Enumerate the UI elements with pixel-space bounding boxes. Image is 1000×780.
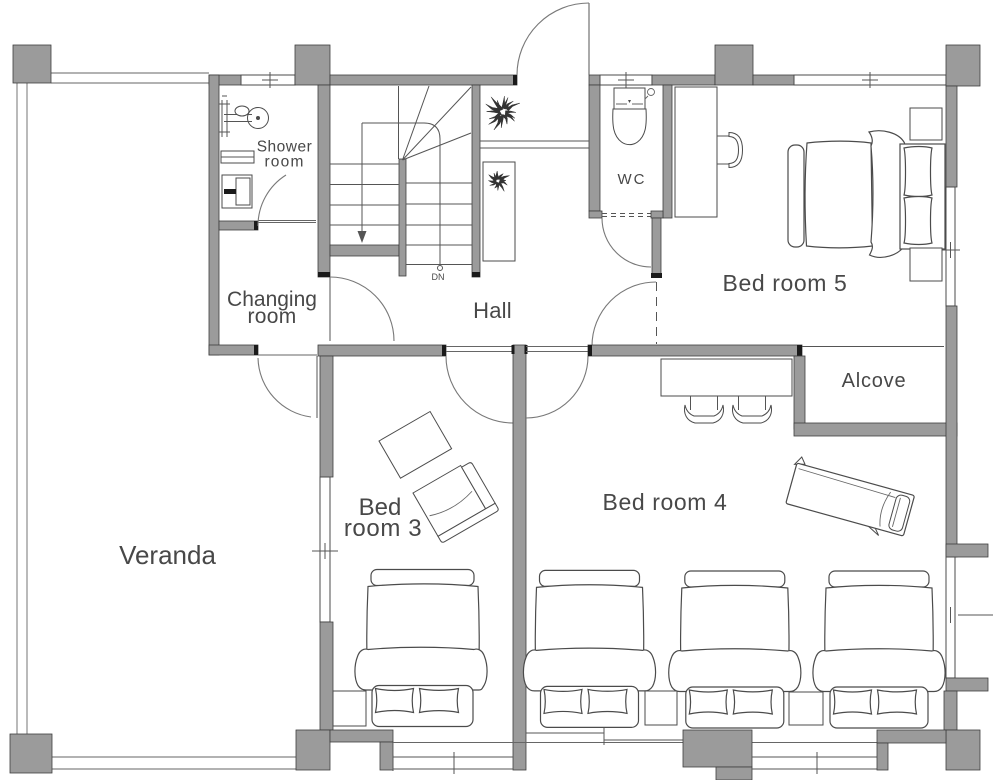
svg-text:Alcove: Alcove <box>842 370 907 392</box>
svg-text:room 3: room 3 <box>344 515 422 542</box>
svg-text:WC: WC <box>618 171 647 188</box>
svg-text:room: room <box>247 305 296 328</box>
svg-text:Bed room 4: Bed room 4 <box>603 489 728 515</box>
svg-text:Bed room 5: Bed room 5 <box>723 270 848 296</box>
svg-text:Hall: Hall <box>473 298 512 323</box>
svg-text:Veranda: Veranda <box>119 540 216 570</box>
svg-text:DN: DN <box>432 272 445 282</box>
svg-text:room: room <box>264 154 304 171</box>
